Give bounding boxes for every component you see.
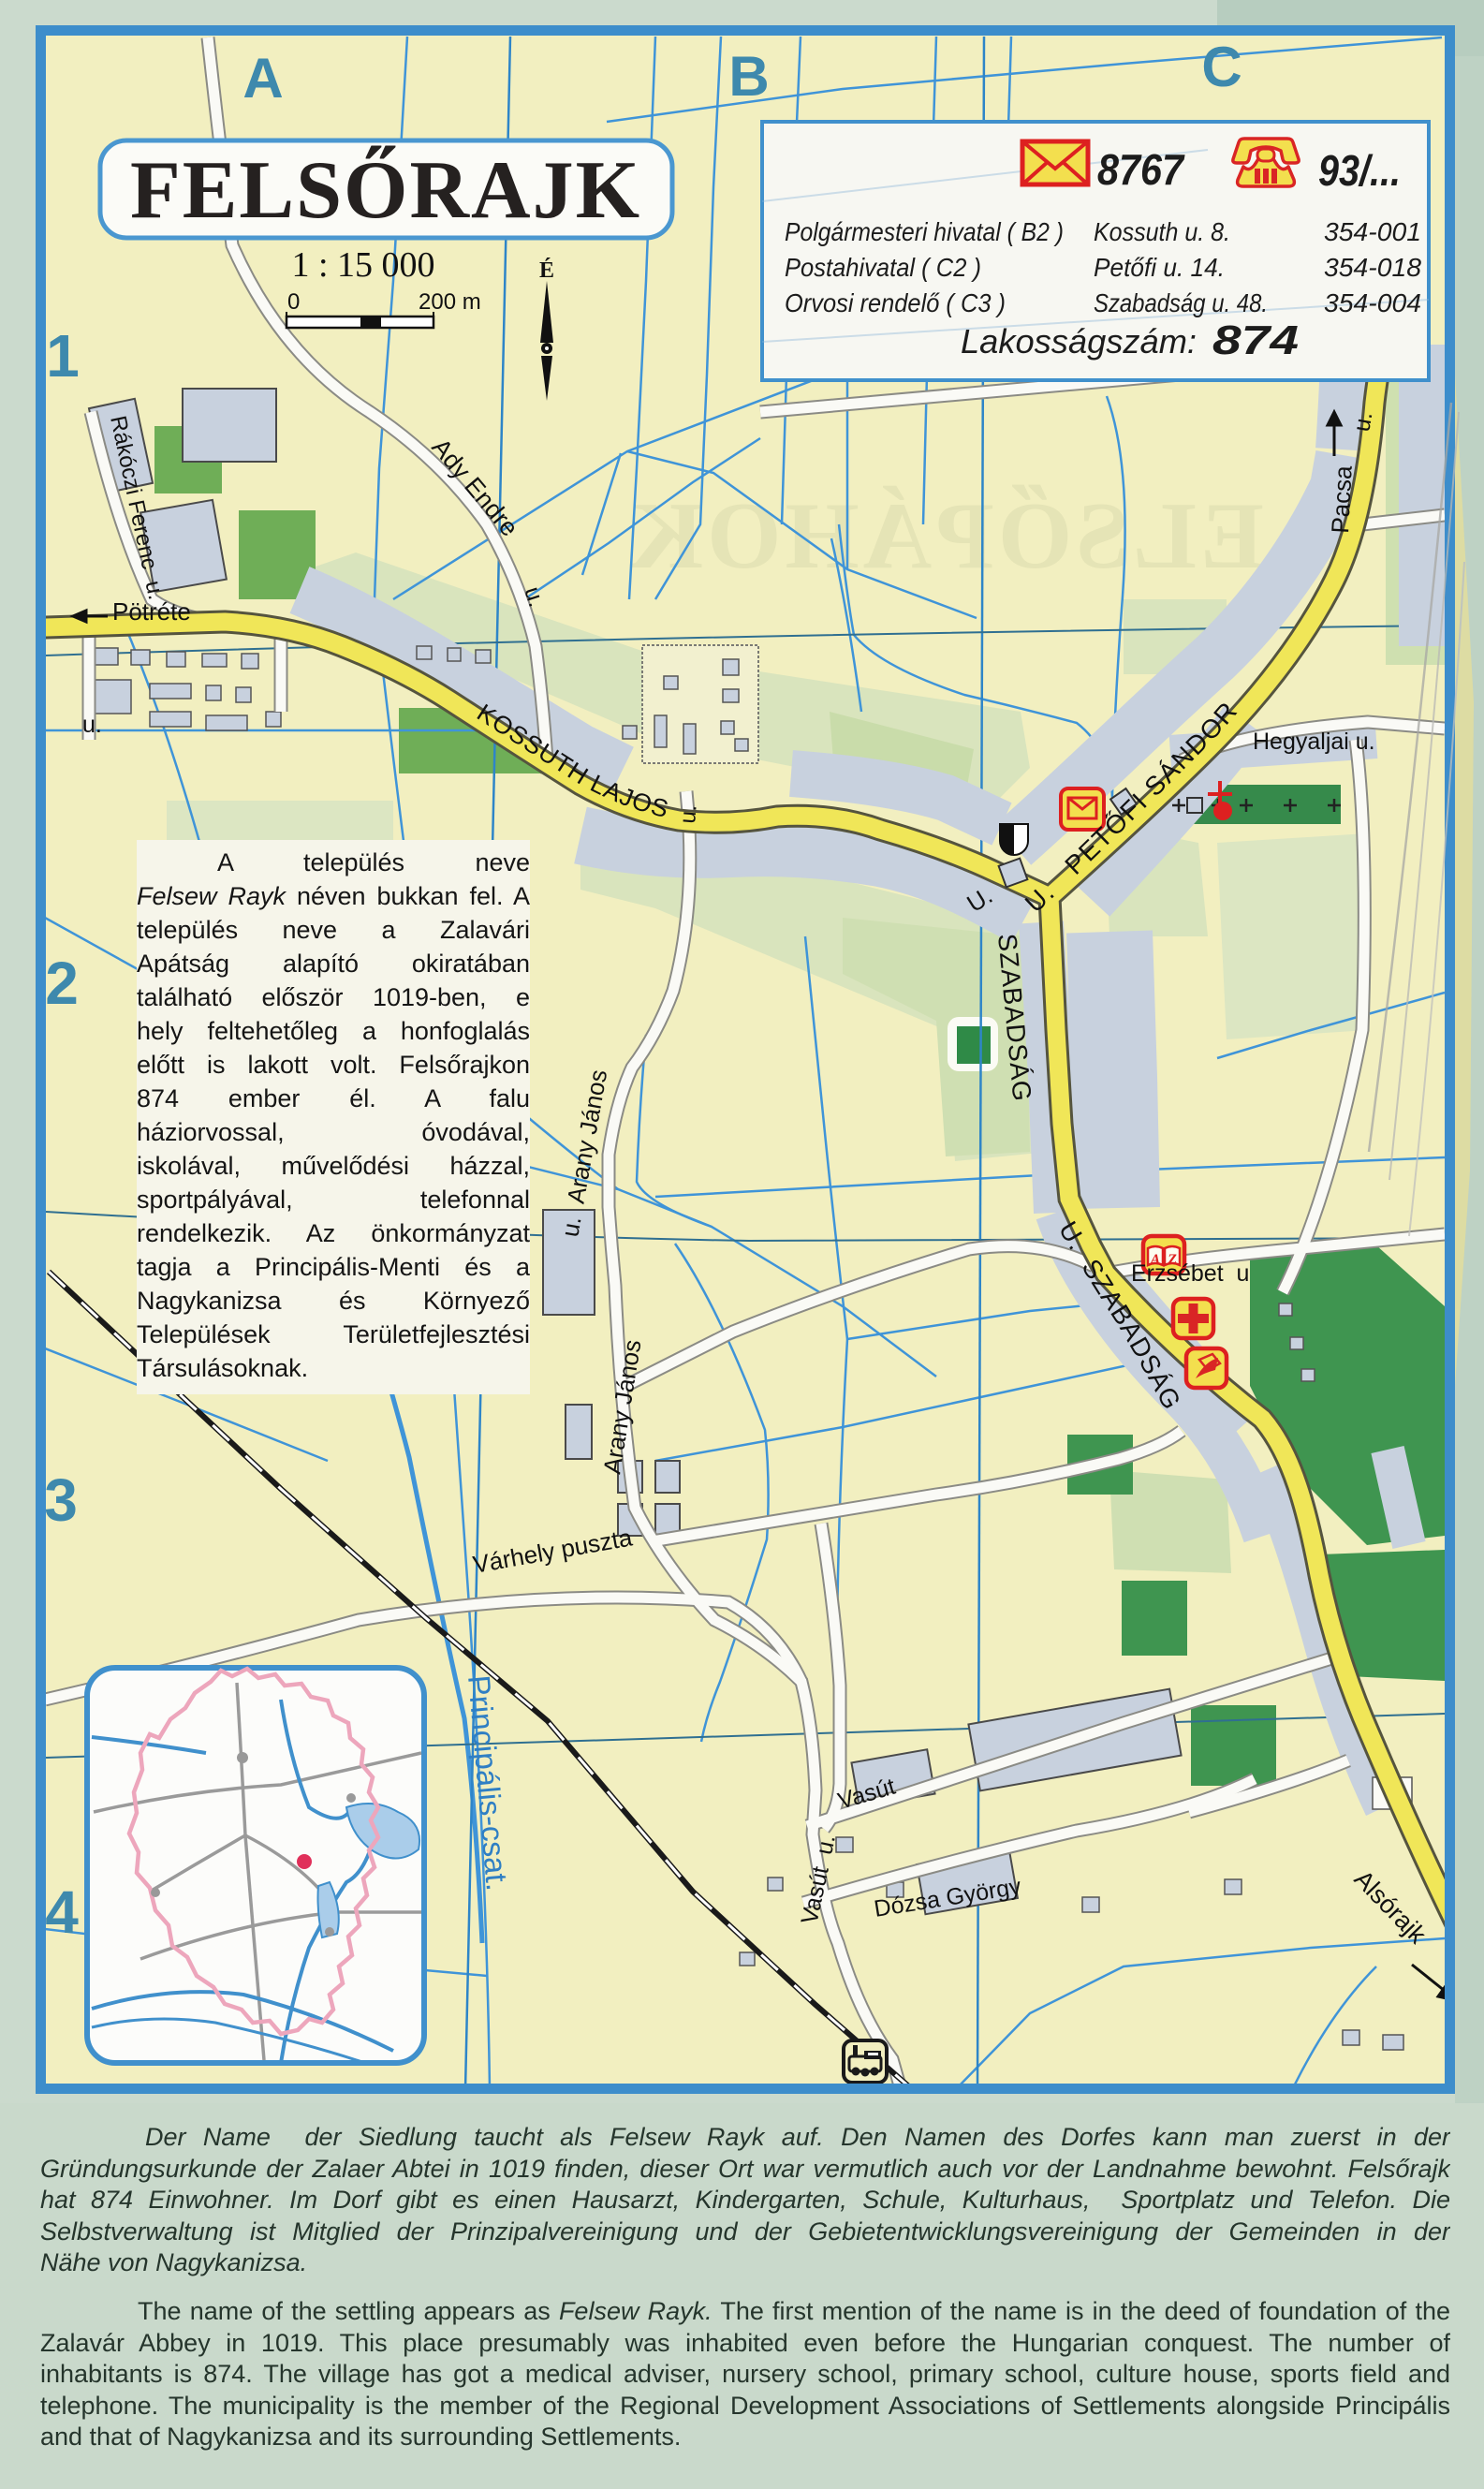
svg-text:FELSŐRAJK: FELSŐRAJK xyxy=(130,145,641,236)
svg-text:Pacsa: Pacsa xyxy=(1326,464,1358,534)
svg-text:4: 4 xyxy=(45,1878,79,1946)
svg-text:Kossuth u. 8.: Kossuth u. 8. xyxy=(1094,217,1230,246)
svg-text:Szabadság u. 48.: Szabadság u. 48. xyxy=(1094,288,1268,317)
svg-text:Erzsébet u: Erzsébet u xyxy=(1131,1260,1249,1287)
svg-text:2: 2 xyxy=(45,950,79,1017)
svg-text:354-018: 354-018 xyxy=(1324,253,1421,282)
svg-text:354-001: 354-001 xyxy=(1324,217,1421,246)
svg-text:93/...: 93/... xyxy=(1318,146,1401,195)
svg-text:u.: u. xyxy=(675,803,702,824)
svg-text:Petőfi u. 14.: Petőfi u. 14. xyxy=(1094,253,1225,282)
svg-text:Hegyaljai u.: Hegyaljai u. xyxy=(1253,729,1375,755)
svg-text:A: A xyxy=(242,47,283,110)
svg-text:B: B xyxy=(728,45,769,108)
svg-text:1: 1 xyxy=(46,322,80,390)
svg-text:3: 3 xyxy=(44,1466,78,1534)
svg-text:8767: 8767 xyxy=(1097,145,1185,194)
svg-text:Postahivatal ( C2 ): Postahivatal ( C2 ) xyxy=(785,253,981,282)
svg-text:354-004: 354-004 xyxy=(1324,288,1421,317)
svg-text:É: É xyxy=(539,258,554,283)
svg-text:ELSŐPÁHOK: ELSŐPÁHOK xyxy=(625,483,1264,589)
svg-text:Pötréte: Pötréte xyxy=(112,597,191,626)
svg-text:u.: u. xyxy=(82,712,102,738)
svg-text:Polgármesteri hivatal ( B2 ): Polgármesteri hivatal ( B2 ) xyxy=(785,217,1064,246)
svg-text:874: 874 xyxy=(1212,317,1299,363)
svg-text:Orvosi rendelő ( C3 ): Orvosi rendelő ( C3 ) xyxy=(785,288,1006,317)
svg-text:1 : 15 000: 1 : 15 000 xyxy=(291,245,434,285)
svg-text:0: 0 xyxy=(287,289,300,315)
svg-text:200 m: 200 m xyxy=(419,289,481,315)
svg-text:Lakosságszám:: Lakosságszám: xyxy=(961,322,1197,361)
svg-text:C: C xyxy=(1201,36,1242,98)
